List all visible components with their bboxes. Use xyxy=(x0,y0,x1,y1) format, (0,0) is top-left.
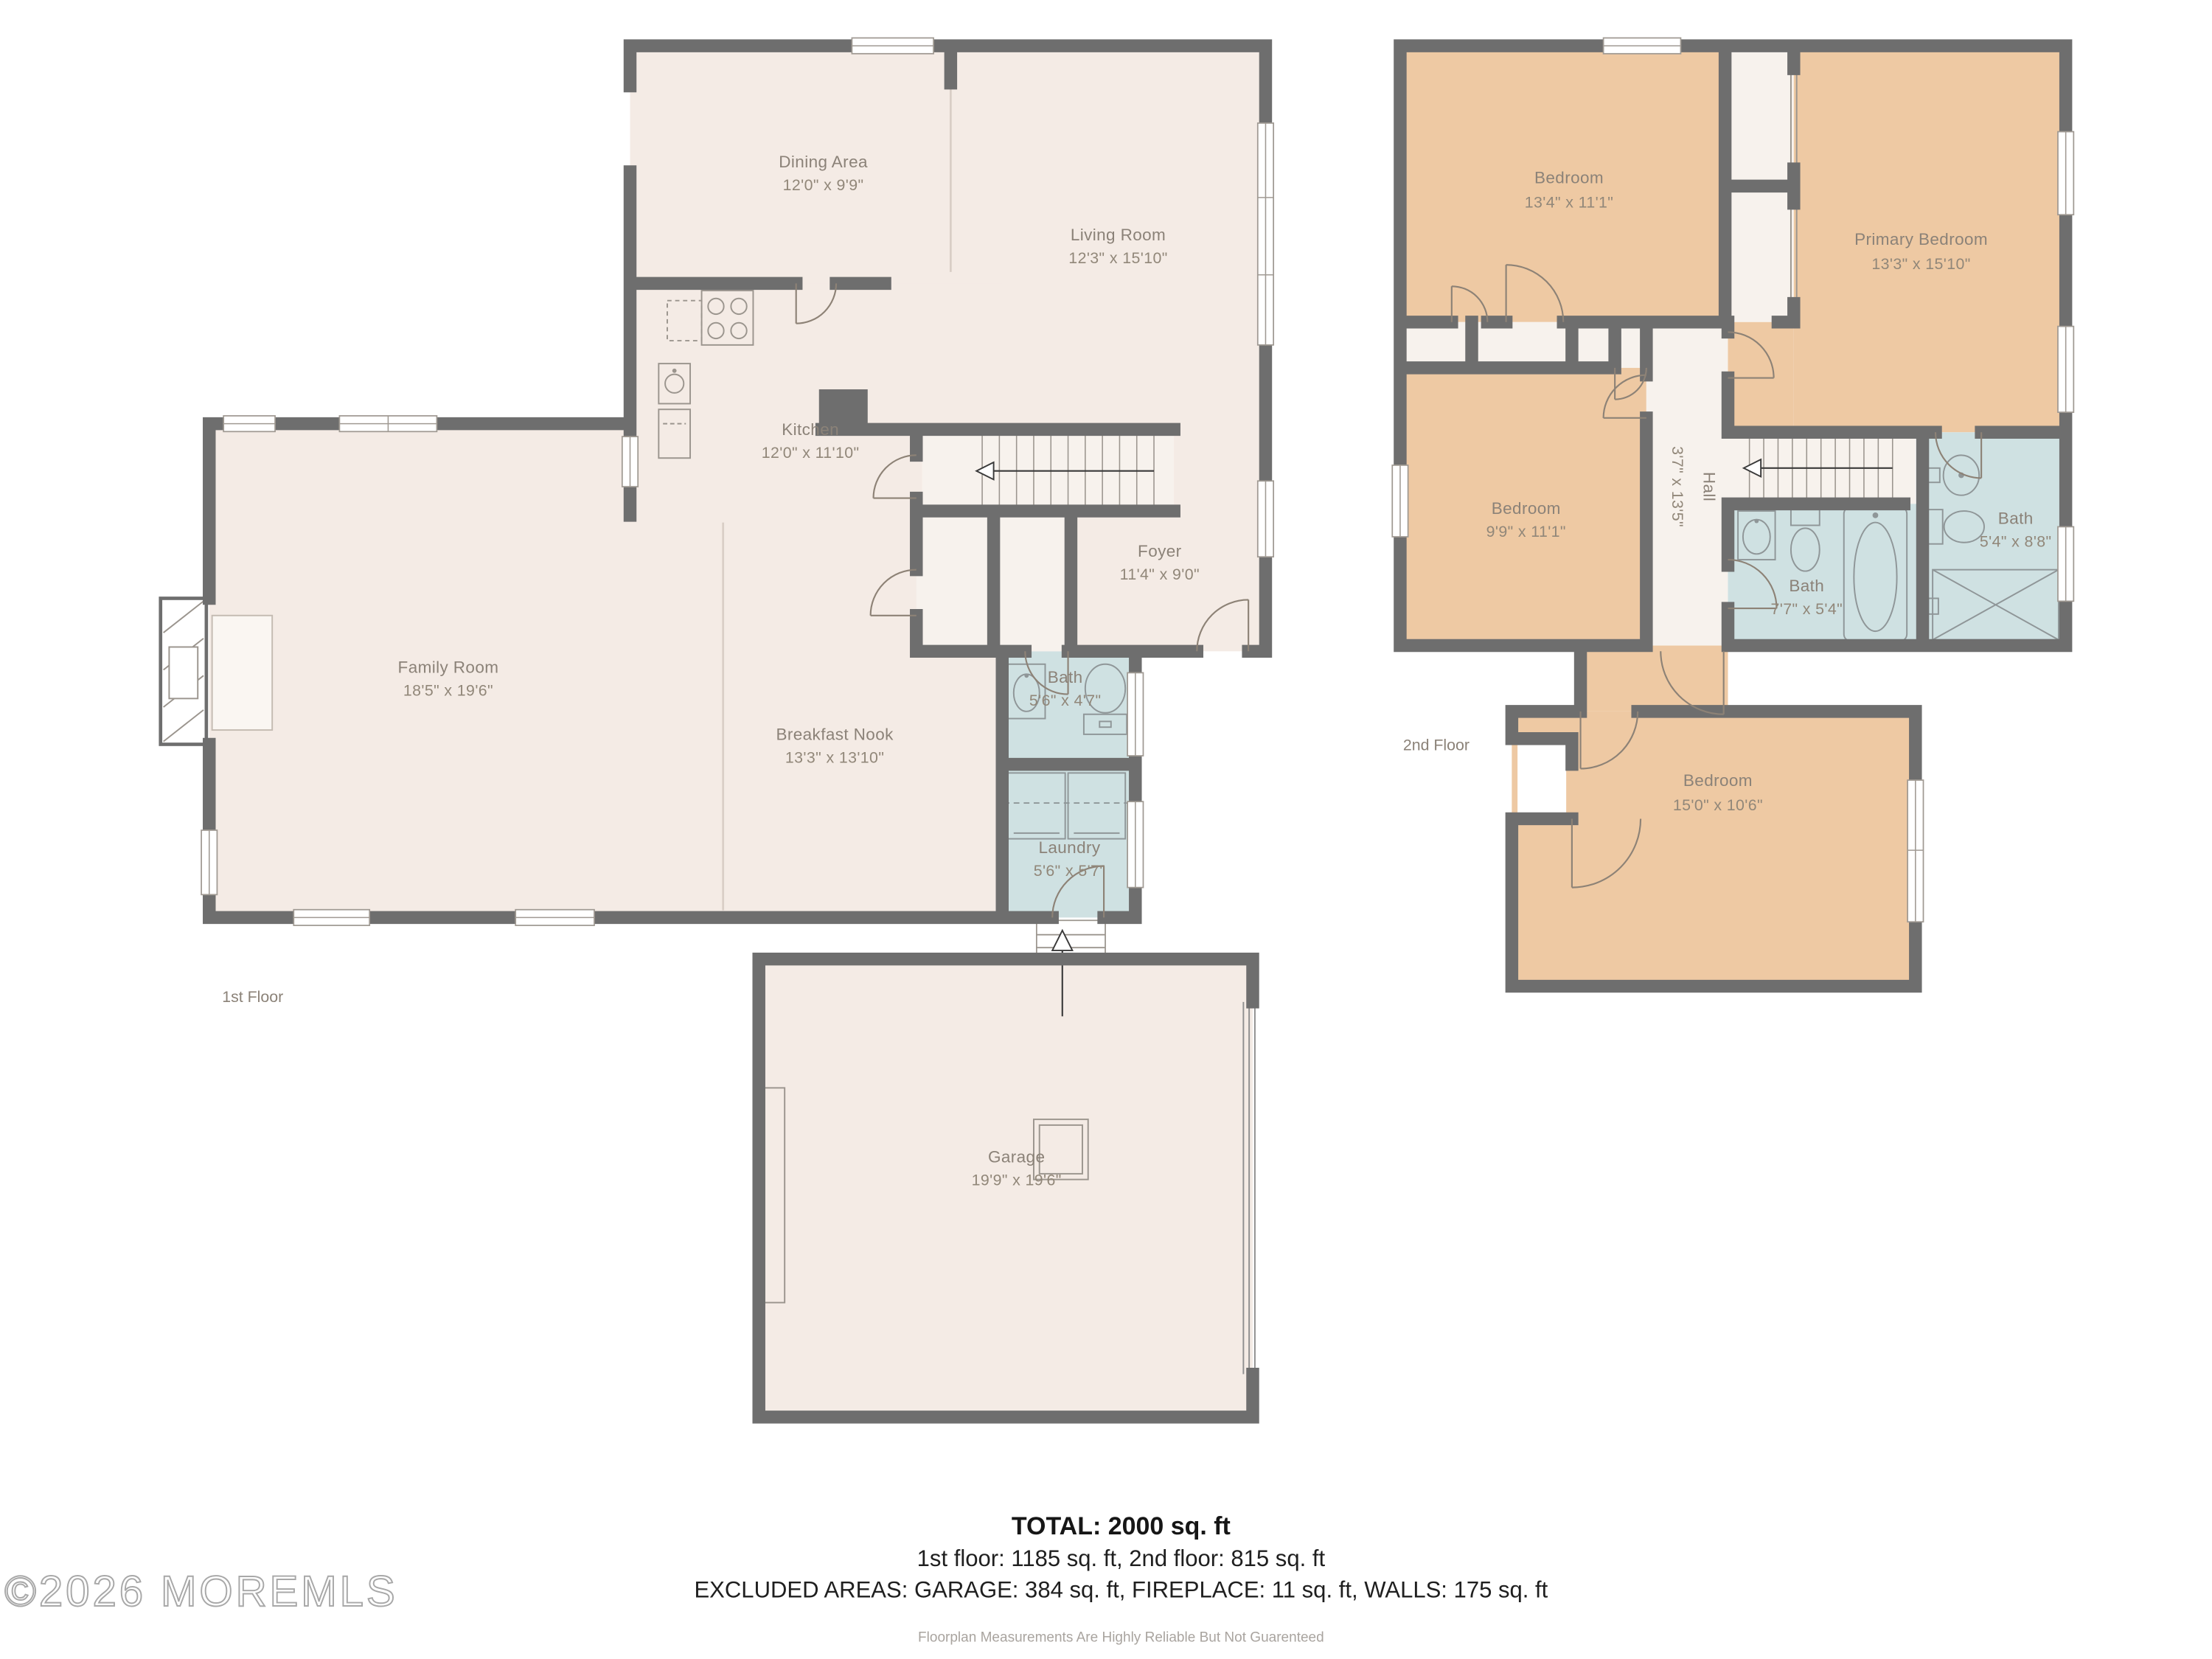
second-floor-tag: 2nd Floor xyxy=(1403,736,1470,754)
first-floor-plan: Dining Area 12'0" x 9'9" Living Room 12'… xyxy=(161,38,1273,1416)
garage-dims: 19'9" x 19'6" xyxy=(972,1171,1062,1189)
kitchen-dims: 12'0" x 11'10" xyxy=(762,444,860,462)
hall-dims: 3'7" x 13'5" xyxy=(1669,446,1686,527)
laundry-dims: 5'6" x 5'7" xyxy=(1034,862,1106,880)
breakfast-nook-dims: 13'3" x 13'10" xyxy=(785,749,884,767)
floorplan-drawing: Dining Area 12'0" x 9'9" Living Room 12'… xyxy=(0,0,2212,1659)
breakfast-nook-label: Breakfast Nook xyxy=(776,726,894,744)
bedroom-bottom-label: Bedroom xyxy=(1683,771,1753,790)
first-floor-tag: 1st Floor xyxy=(222,988,283,1006)
floorplan-page: Dining Area 12'0" x 9'9" Living Room 12'… xyxy=(0,0,2212,1659)
bath-primary-label: Bath xyxy=(1998,509,2034,528)
bedroom-top-label: Bedroom xyxy=(1534,168,1604,187)
family-room-label: Family Room xyxy=(398,658,499,676)
vestibule-floor xyxy=(1581,646,1728,712)
primary-bedroom-dims: 13'3" x 15'10" xyxy=(1871,255,1970,273)
summary-floor-breakdown: 1st floor: 1185 sq. ft, 2nd floor: 815 s… xyxy=(917,1545,1326,1571)
bedroom-mid-dims: 9'9" x 11'1" xyxy=(1486,523,1566,540)
living-room-label: Living Room xyxy=(1071,226,1166,244)
hearth xyxy=(212,616,273,730)
watermark: ©2026 MOREMLS xyxy=(4,1568,397,1615)
dining-area-dims: 12'0" x 9'9" xyxy=(783,176,864,194)
foyer-label: Foyer xyxy=(1138,542,1182,560)
primary-bedroom-label: Primary Bedroom xyxy=(1854,230,1988,248)
family-room-dims: 18'5" x 19'6" xyxy=(403,681,493,699)
bath1-dims: 5'6" x 4'7" xyxy=(1029,692,1102,709)
hall-label: Hall xyxy=(1700,472,1719,501)
bedroom-bottom-notch xyxy=(1517,744,1566,813)
bedroom-mid-label: Bedroom xyxy=(1492,499,1561,518)
fireplace-icon xyxy=(161,598,272,744)
foyer-dims: 11'4" x 9'0" xyxy=(1120,566,1200,583)
second-floor-plan: Bedroom 13'4" x 11'1" Primary Bedroom 13… xyxy=(1392,38,2073,986)
summary-excluded-areas: EXCLUDED AREAS: GARAGE: 384 sq. ft, FIRE… xyxy=(694,1577,1548,1603)
summary-block: TOTAL: 2000 sq. ft 1st floor: 1185 sq. f… xyxy=(694,1512,1548,1646)
bedroom-top-dims: 13'4" x 11'1" xyxy=(1525,193,1614,211)
dining-area-label: Dining Area xyxy=(779,153,868,171)
garage-label: Garage xyxy=(988,1147,1045,1166)
summary-total: TOTAL: 2000 sq. ft xyxy=(1012,1512,1231,1540)
living-room-dims: 12'3" x 15'10" xyxy=(1068,249,1167,267)
summary-disclaimer: Floorplan Measurements Are Highly Reliab… xyxy=(918,1630,1324,1646)
bath-hall-floor xyxy=(1728,504,1923,645)
bath1-label: Bath xyxy=(1048,668,1083,686)
bath-primary-dims: 5'4" x 8'8" xyxy=(1980,533,2052,551)
bath-hall-dims: 7'7" x 5'4" xyxy=(1770,600,1843,618)
bedroom-bottom-dims: 15'0" x 10'6" xyxy=(1673,796,1763,814)
laundry-label: Laundry xyxy=(1038,838,1100,857)
bath-hall-label: Bath xyxy=(1789,577,1824,595)
kitchen-label: Kitchen xyxy=(782,420,839,439)
